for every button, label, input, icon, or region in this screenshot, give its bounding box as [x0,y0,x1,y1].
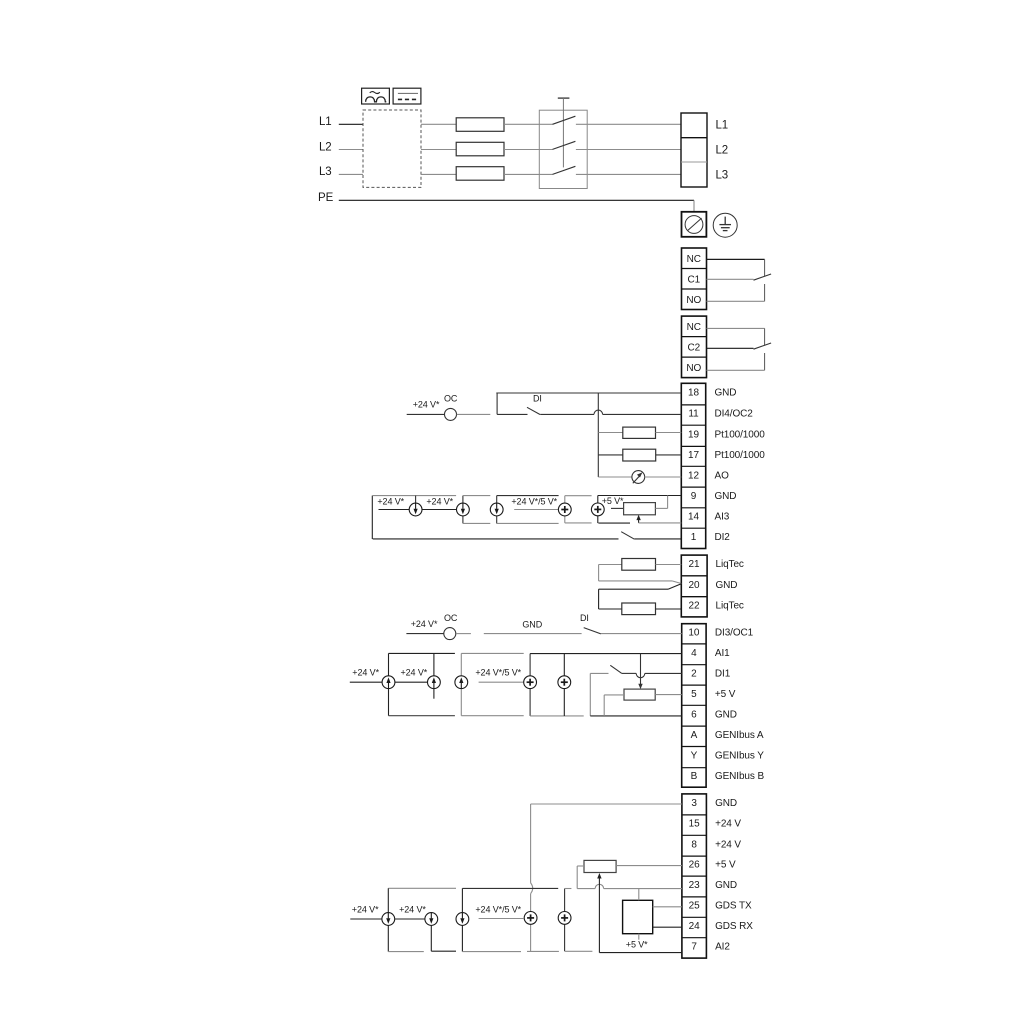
svg-text:PE: PE [318,192,334,204]
svg-text:AI2: AI2 [715,942,730,953]
svg-text:+24 V: +24 V [715,839,741,850]
svg-text:GENIbus A: GENIbus A [715,730,764,741]
svg-text:+24 V*: +24 V* [352,905,379,915]
svg-text:AI3: AI3 [715,512,730,523]
svg-text:GENIbus B: GENIbus B [715,771,765,782]
svg-text:21: 21 [689,559,700,570]
svg-text:GND: GND [715,798,737,809]
svg-text:OC: OC [444,394,458,404]
svg-text:DI: DI [580,613,589,623]
svg-text:26: 26 [689,860,700,871]
svg-text:B: B [691,771,698,782]
svg-text:DI4/OC2: DI4/OC2 [715,409,754,420]
svg-text:NO: NO [686,295,701,306]
svg-text:25: 25 [689,901,700,912]
svg-text:23: 23 [689,880,700,891]
svg-text:C1: C1 [688,275,701,286]
svg-text:DI1: DI1 [715,669,731,680]
svg-text:NC: NC [687,254,701,265]
svg-text:NO: NO [686,363,701,374]
svg-text:10: 10 [688,627,699,638]
svg-text:+5 V: +5 V [715,689,736,700]
svg-text:2: 2 [691,669,697,680]
svg-text:22: 22 [689,600,700,611]
svg-text:11: 11 [688,409,699,420]
svg-text:+24 V*: +24 V* [413,400,440,410]
svg-text:LiqTec: LiqTec [716,559,744,570]
svg-text:L1: L1 [716,119,729,131]
svg-text:+24 V*: +24 V* [352,668,379,678]
svg-text:+24 V*: +24 V* [399,905,426,915]
svg-text:+5 V: +5 V [715,860,736,871]
svg-text:8: 8 [691,839,697,850]
svg-text:+5 V*: +5 V* [602,496,624,506]
svg-text:L3: L3 [716,169,729,181]
svg-text:L3: L3 [319,166,332,178]
svg-text:GND: GND [522,620,542,630]
svg-text:LiqTec: LiqTec [716,600,744,611]
svg-text:GND: GND [716,580,738,591]
svg-text:AO: AO [715,470,730,481]
svg-text:+24 V*: +24 V* [426,497,453,507]
svg-text:19: 19 [688,429,699,440]
svg-text:OC: OC [444,613,458,623]
svg-text:Pt100/1000: Pt100/1000 [715,450,766,461]
svg-text:Y: Y [691,751,698,762]
svg-text:DI: DI [533,394,542,404]
svg-text:4: 4 [691,648,697,659]
svg-text:9: 9 [691,491,697,502]
svg-text:GDS RX: GDS RX [715,921,753,932]
svg-text:14: 14 [688,512,699,523]
svg-text:L2: L2 [716,144,729,156]
svg-text:A: A [691,730,698,741]
svg-text:3: 3 [691,798,697,809]
svg-text:L1: L1 [319,116,332,128]
svg-text:+5 V*: +5 V* [626,940,648,950]
svg-text:GND: GND [715,388,737,399]
svg-text:DI3/OC1: DI3/OC1 [715,627,754,638]
svg-text:20: 20 [689,580,700,591]
svg-text:+24 V*: +24 V* [401,668,428,678]
svg-text:6: 6 [691,709,697,720]
svg-text:NC: NC [687,322,701,333]
svg-text:+24 V*/5 V*: +24 V*/5 V* [475,668,521,678]
svg-text:12: 12 [688,470,699,481]
svg-text:Pt100/1000: Pt100/1000 [715,429,766,440]
svg-text:GND: GND [715,880,737,891]
svg-text:GND: GND [715,709,737,720]
svg-text:+24 V*: +24 V* [411,619,438,629]
svg-text:DI2: DI2 [715,532,731,543]
svg-text:L2: L2 [319,142,332,154]
svg-text:+24 V: +24 V [715,819,741,830]
svg-text:AI1: AI1 [715,648,730,659]
svg-text:+24 V*: +24 V* [377,497,404,507]
svg-text:+24 V*/5 V*: +24 V*/5 V* [475,905,521,915]
svg-text:7: 7 [691,942,697,953]
svg-text:18: 18 [688,388,699,399]
svg-text:1: 1 [691,532,697,543]
svg-text:GDS TX: GDS TX [715,901,752,912]
svg-text:C2: C2 [688,343,701,354]
svg-text:15: 15 [689,819,700,830]
svg-text:17: 17 [688,450,699,461]
svg-text:GENIbus Y: GENIbus Y [715,751,764,762]
svg-text:GND: GND [715,491,737,502]
svg-text:5: 5 [691,689,697,700]
svg-text:+24 V*/5 V*: +24 V*/5 V* [511,497,557,507]
svg-text:24: 24 [689,921,700,932]
